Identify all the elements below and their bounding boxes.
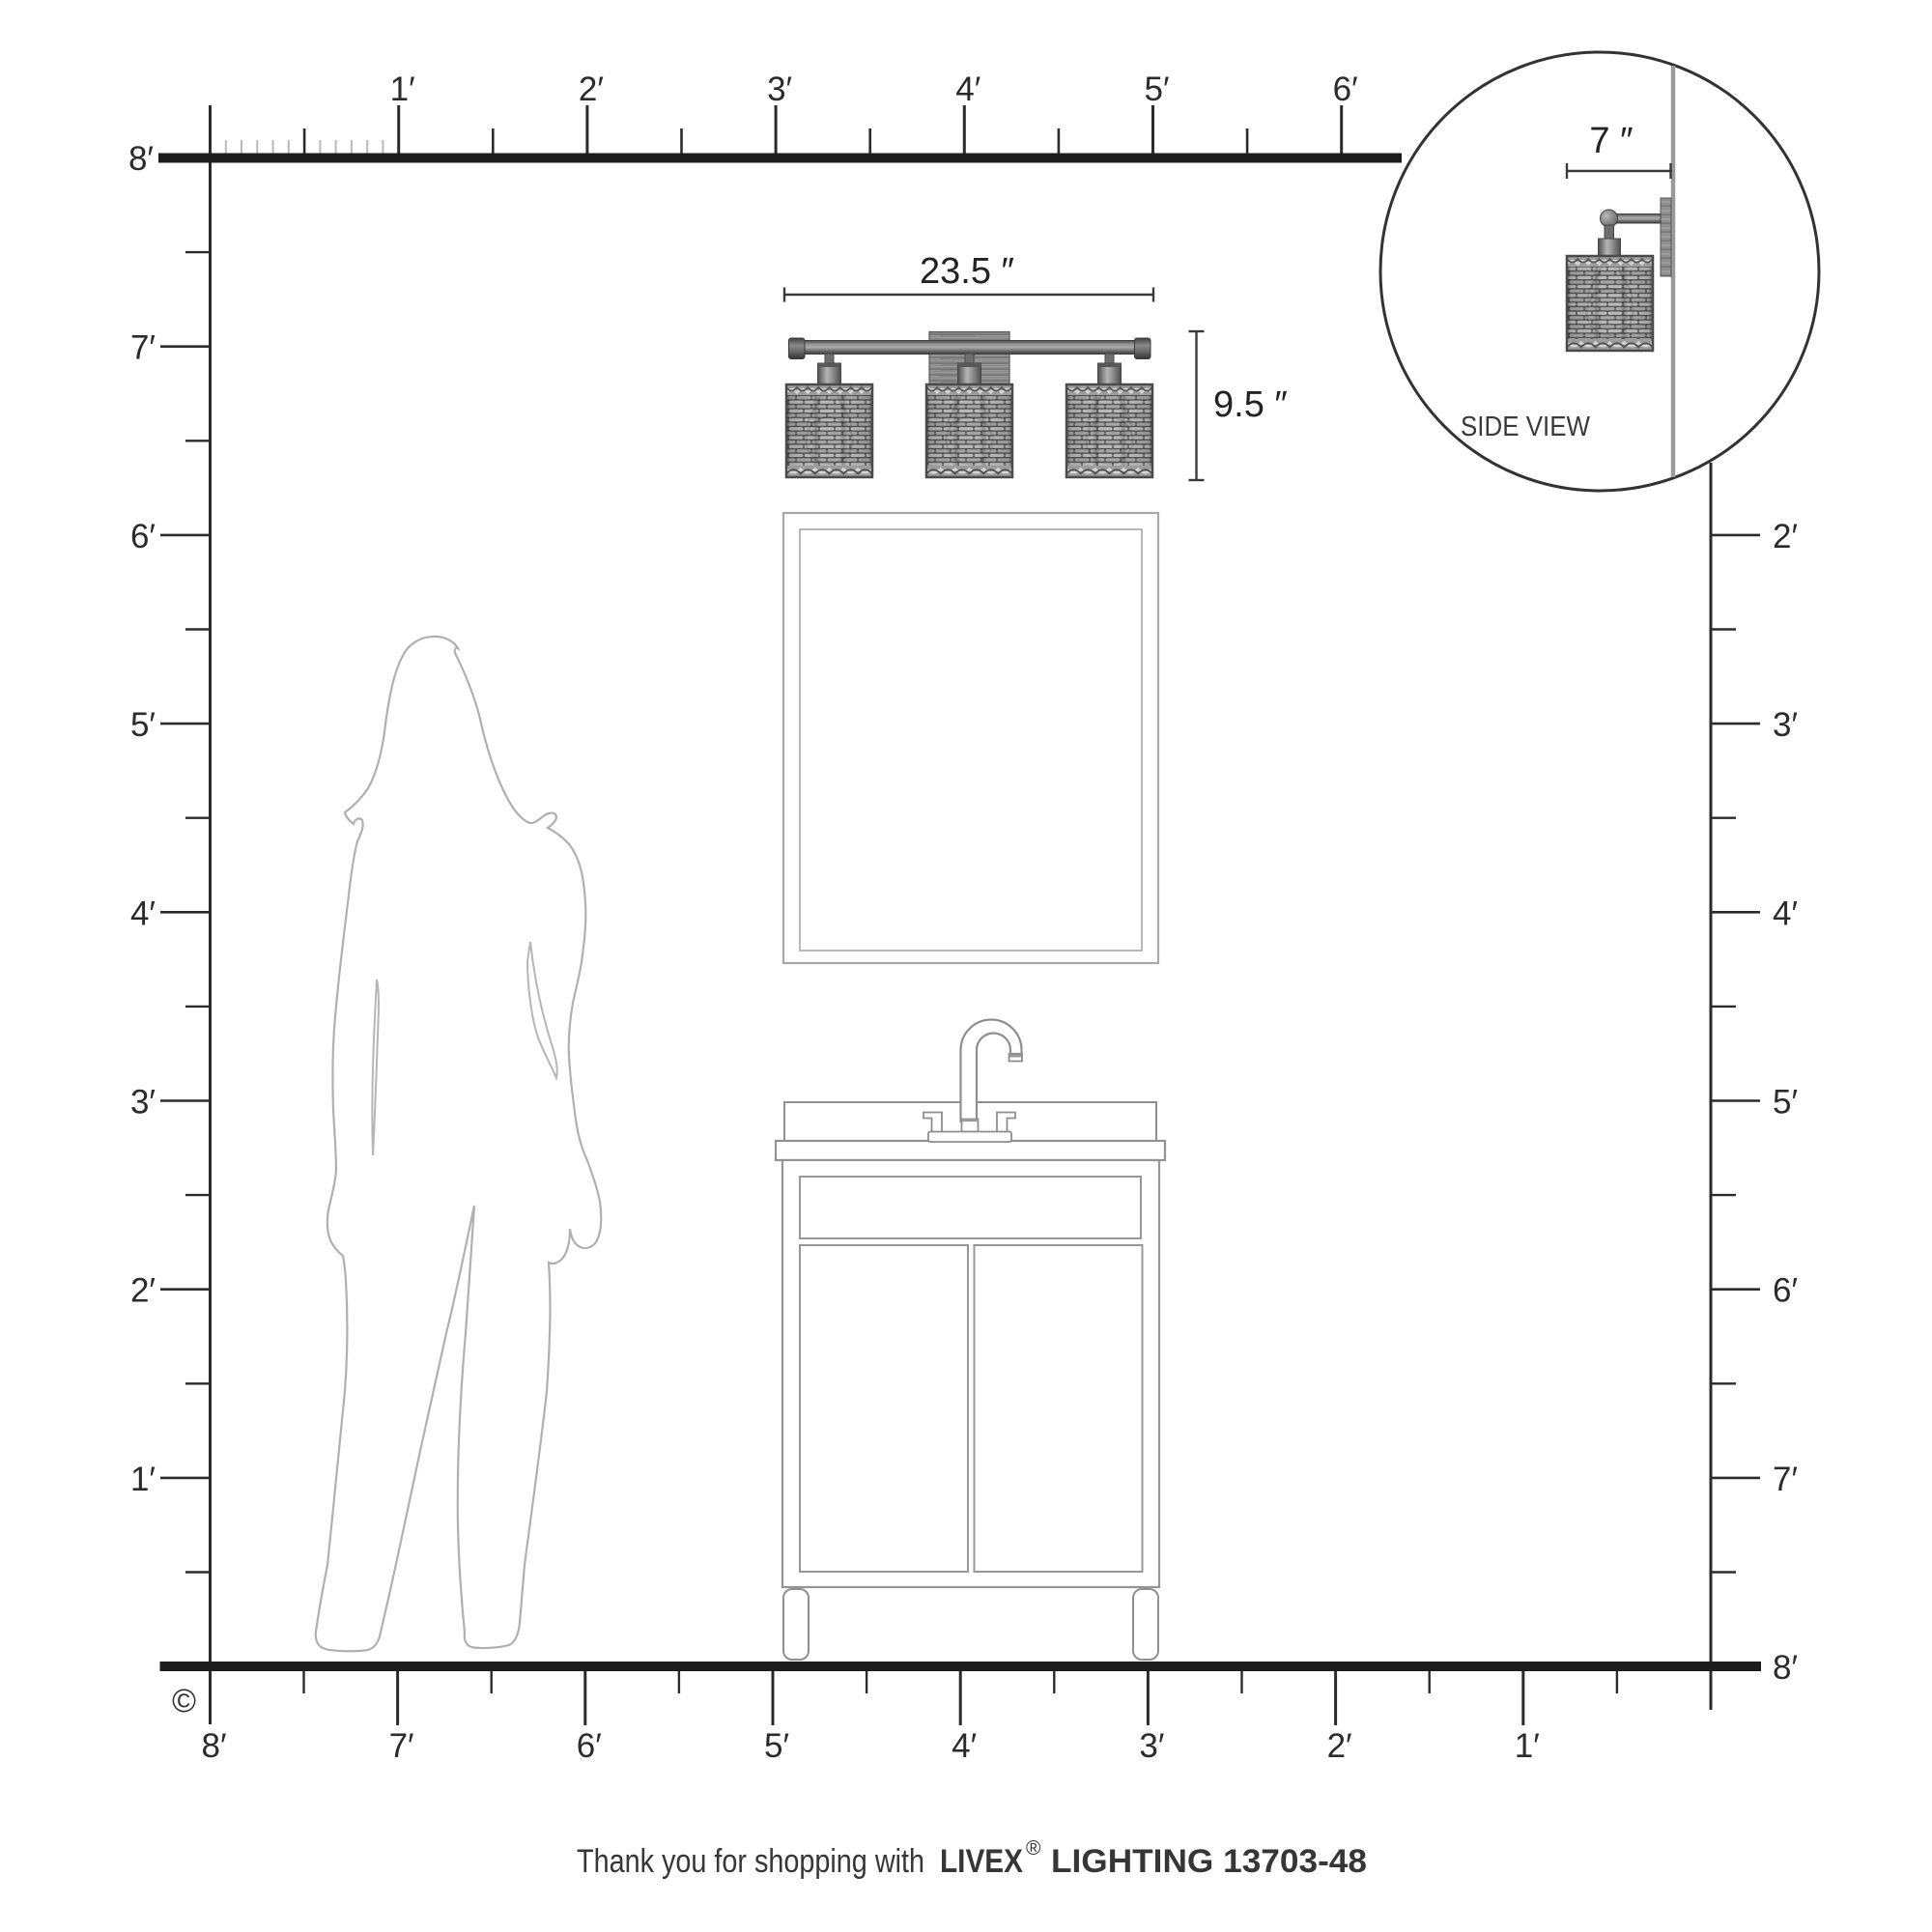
svg-text:8′: 8′ (128, 140, 154, 178)
svg-text:©: © (172, 1683, 196, 1719)
svg-text:LIVEX: LIVEX (940, 1843, 1023, 1880)
svg-text:2′: 2′ (1327, 1727, 1352, 1765)
svg-text:23.5 ″: 23.5 ″ (920, 251, 1014, 292)
svg-text:8′: 8′ (1773, 1649, 1798, 1687)
svg-text:4′: 4′ (952, 1727, 977, 1765)
svg-text:9.5 ″: 9.5 ″ (1213, 384, 1288, 425)
svg-text:3′: 3′ (1139, 1727, 1164, 1765)
svg-text:3′: 3′ (130, 1084, 156, 1122)
svg-text:2′: 2′ (1773, 518, 1798, 555)
svg-text:2′: 2′ (130, 1272, 156, 1310)
svg-text:LIGHTING 13703-48: LIGHTING 13703-48 (1051, 1843, 1367, 1880)
svg-text:2′: 2′ (579, 71, 604, 108)
svg-text:7 ″: 7 ″ (1589, 121, 1633, 161)
svg-text:5′: 5′ (1773, 1084, 1798, 1122)
svg-text:1′: 1′ (390, 71, 415, 108)
svg-text:1′: 1′ (130, 1461, 156, 1498)
svg-text:5′: 5′ (764, 1727, 789, 1765)
svg-text:4′: 4′ (955, 71, 980, 108)
svg-text:®: ® (1026, 1837, 1041, 1860)
svg-text:1′: 1′ (1515, 1727, 1540, 1765)
svg-text:4′: 4′ (1773, 895, 1798, 932)
svg-text:Thank you for shopping with: Thank you for shopping with (577, 1843, 924, 1880)
svg-text:3′: 3′ (767, 71, 792, 108)
svg-text:8′: 8′ (201, 1727, 226, 1765)
svg-text:6′: 6′ (1333, 71, 1358, 108)
svg-text:7′: 7′ (1773, 1461, 1798, 1498)
svg-text:6′: 6′ (130, 518, 156, 555)
svg-text:7′: 7′ (130, 329, 156, 367)
svg-text:5′: 5′ (1144, 71, 1169, 108)
svg-text:7′: 7′ (389, 1727, 414, 1765)
svg-text:SIDE VIEW: SIDE VIEW (1461, 412, 1591, 442)
svg-text:6′: 6′ (1773, 1272, 1798, 1310)
svg-text:6′: 6′ (577, 1727, 602, 1765)
svg-text:5′: 5′ (130, 706, 156, 744)
svg-text:3′: 3′ (1773, 706, 1798, 744)
svg-text:4′: 4′ (130, 895, 156, 932)
